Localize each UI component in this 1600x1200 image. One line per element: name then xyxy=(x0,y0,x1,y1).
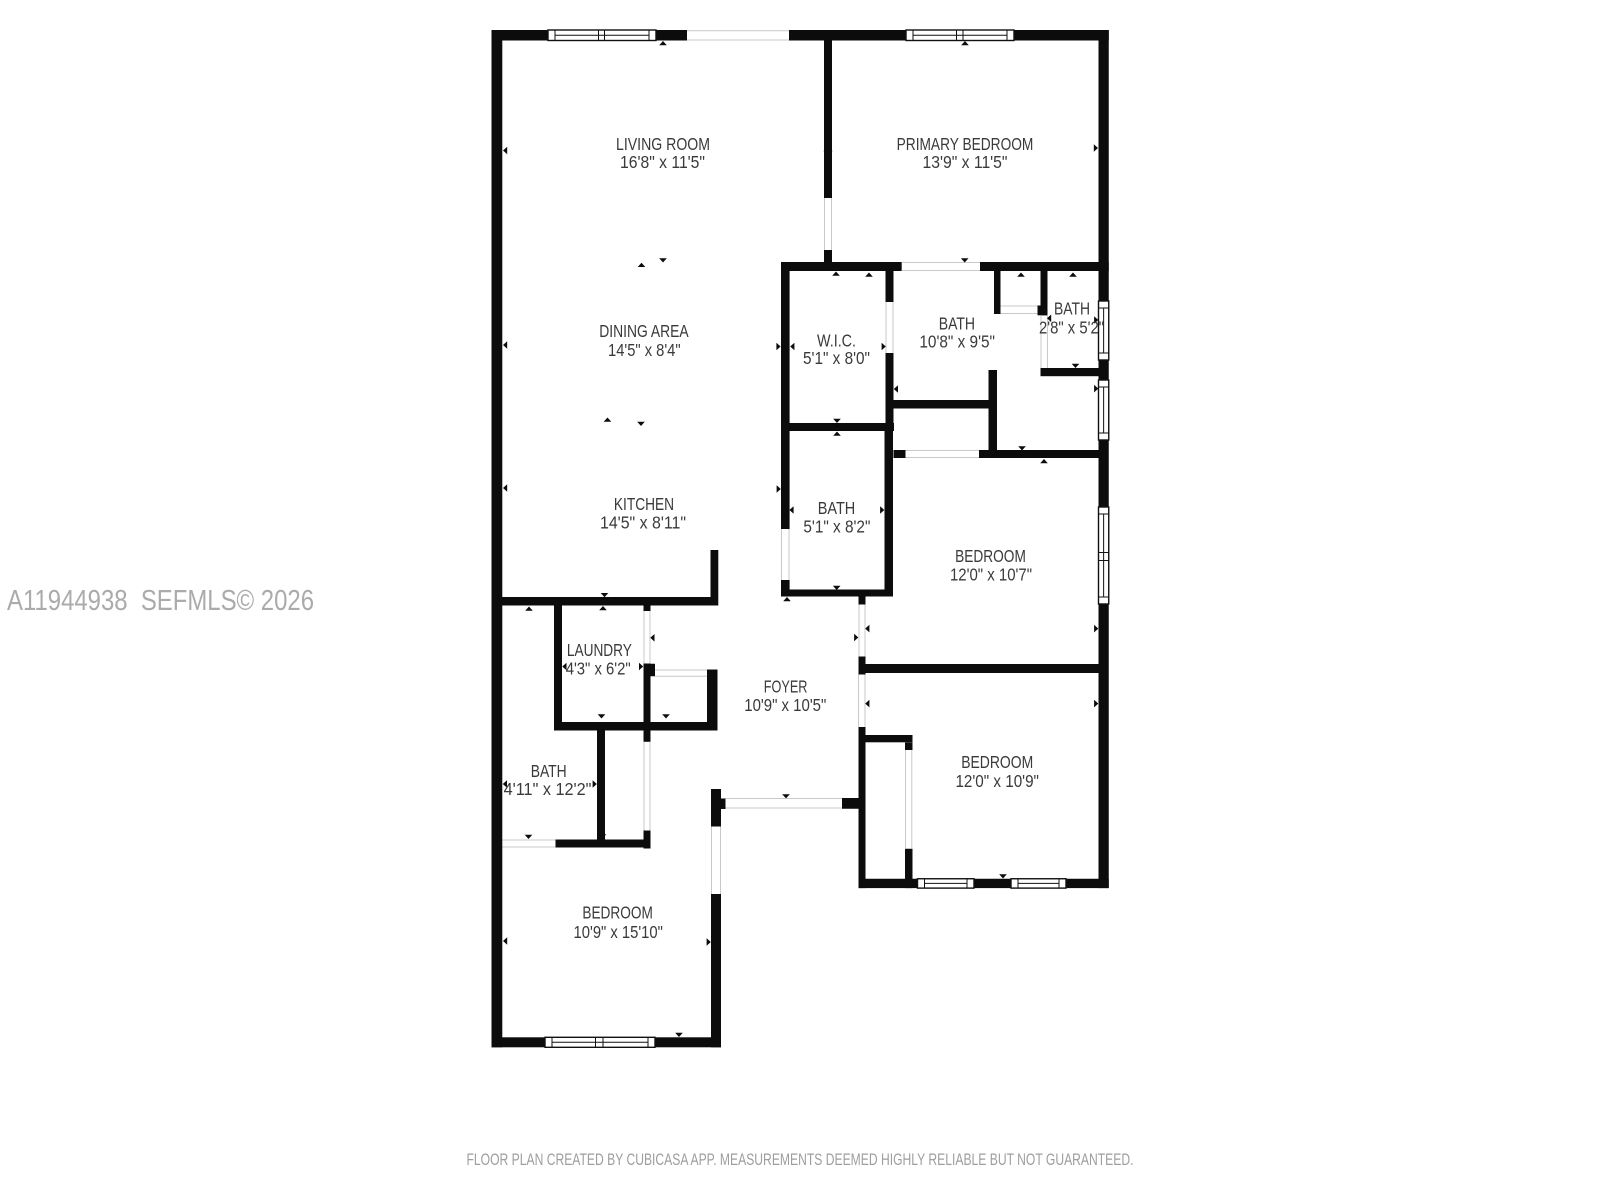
svg-text:12'0" x 10'9": 12'0" x 10'9" xyxy=(955,771,1039,791)
svg-text:14'5" x 8'4": 14'5" x 8'4" xyxy=(608,340,681,360)
svg-text:13'9" x 11'5": 13'9" x 11'5" xyxy=(923,152,1008,172)
svg-text:LAUNDRY: LAUNDRY xyxy=(567,640,632,660)
svg-text:4'11" x 12'2": 4'11" x 12'2" xyxy=(504,779,592,799)
svg-text:BEDROOM: BEDROOM xyxy=(582,903,653,923)
svg-text:12'0" x 10'7": 12'0" x 10'7" xyxy=(950,565,1032,585)
svg-text:BEDROOM: BEDROOM xyxy=(955,546,1026,566)
svg-text:BATH: BATH xyxy=(818,498,856,518)
svg-text:KITCHEN: KITCHEN xyxy=(614,494,674,514)
svg-text:10'9" x 15'10": 10'9" x 15'10" xyxy=(574,922,663,942)
svg-text:5'1" x 8'0": 5'1" x 8'0" xyxy=(803,348,870,368)
svg-text:5'1" x 8'2": 5'1" x 8'2" xyxy=(803,517,870,537)
svg-text:2'8" x 5'2": 2'8" x 5'2" xyxy=(1039,318,1104,338)
svg-text:FOYER: FOYER xyxy=(764,677,808,697)
svg-text:10'9" x 10'5": 10'9" x 10'5" xyxy=(744,695,826,715)
svg-text:PRIMARY BEDROOM: PRIMARY BEDROOM xyxy=(897,134,1034,154)
svg-text:DINING AREA: DINING AREA xyxy=(599,321,689,341)
svg-text:BEDROOM: BEDROOM xyxy=(961,752,1033,772)
svg-text:LIVING ROOM: LIVING ROOM xyxy=(616,134,710,154)
svg-text:4'3" x 6'2": 4'3" x 6'2" xyxy=(566,659,631,679)
svg-text:16'8" x 11'5": 16'8" x 11'5" xyxy=(620,152,705,172)
svg-text:BATH: BATH xyxy=(939,314,975,334)
svg-text:FLOOR PLAN CREATED BY CUBICASA: FLOOR PLAN CREATED BY CUBICASA APP. MEAS… xyxy=(467,1151,1134,1169)
svg-text:14'5" x 8'11": 14'5" x 8'11" xyxy=(600,512,686,532)
svg-text:BATH: BATH xyxy=(531,761,567,781)
svg-text:10'8" x 9'5": 10'8" x 9'5" xyxy=(919,332,995,352)
svg-text:BATH: BATH xyxy=(1054,299,1090,319)
svg-text:A11944938 SEFMLS© 2026: A11944938 SEFMLS© 2026 xyxy=(7,585,314,617)
